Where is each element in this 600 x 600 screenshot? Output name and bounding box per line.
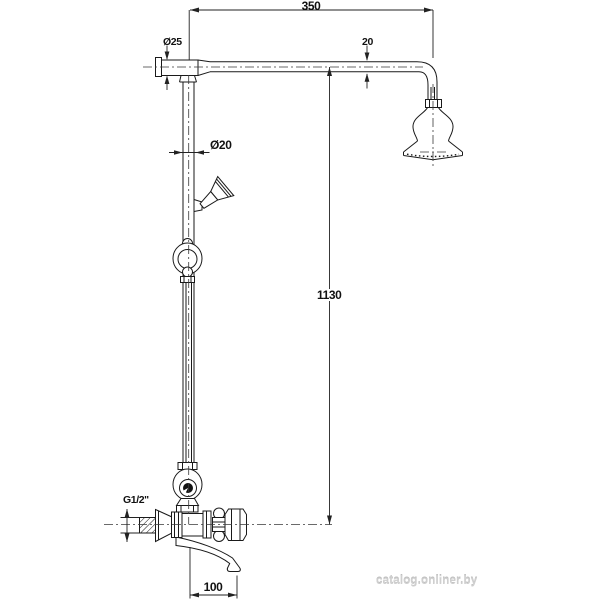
shower-arm [156, 58, 438, 100]
dim-riser-diameter-label: Ø20 [210, 139, 231, 151]
dim-inlet-thread-label: G1/2" [123, 495, 149, 506]
hand-shower [194, 176, 234, 215]
dim-arm-pipe-diameter-label: 20 [359, 37, 376, 48]
dimension-lines [121, 10, 434, 599]
slider-holder [173, 239, 202, 283]
dimension-arrows [125, 8, 433, 598]
dim-column-height-label: 1130 [315, 289, 343, 301]
spout [176, 537, 240, 572]
centerlines [104, 67, 446, 525]
dim-wall-connector-diameter-label: Ø25 [163, 37, 182, 48]
dim-spout-length-label: 100 [199, 581, 227, 593]
diverter-valve [173, 463, 202, 513]
shower-system-drawing: 350 Ø25 20 Ø20 1130 G1/2" 100 catalog.on… [0, 0, 600, 600]
drawing-geometry [0, 0, 600, 600]
dim-arm-length-label: 350 [296, 0, 326, 12]
wall-supply-fitting [140, 510, 173, 542]
watermark-text: catalog.onliner.by [376, 575, 477, 587]
